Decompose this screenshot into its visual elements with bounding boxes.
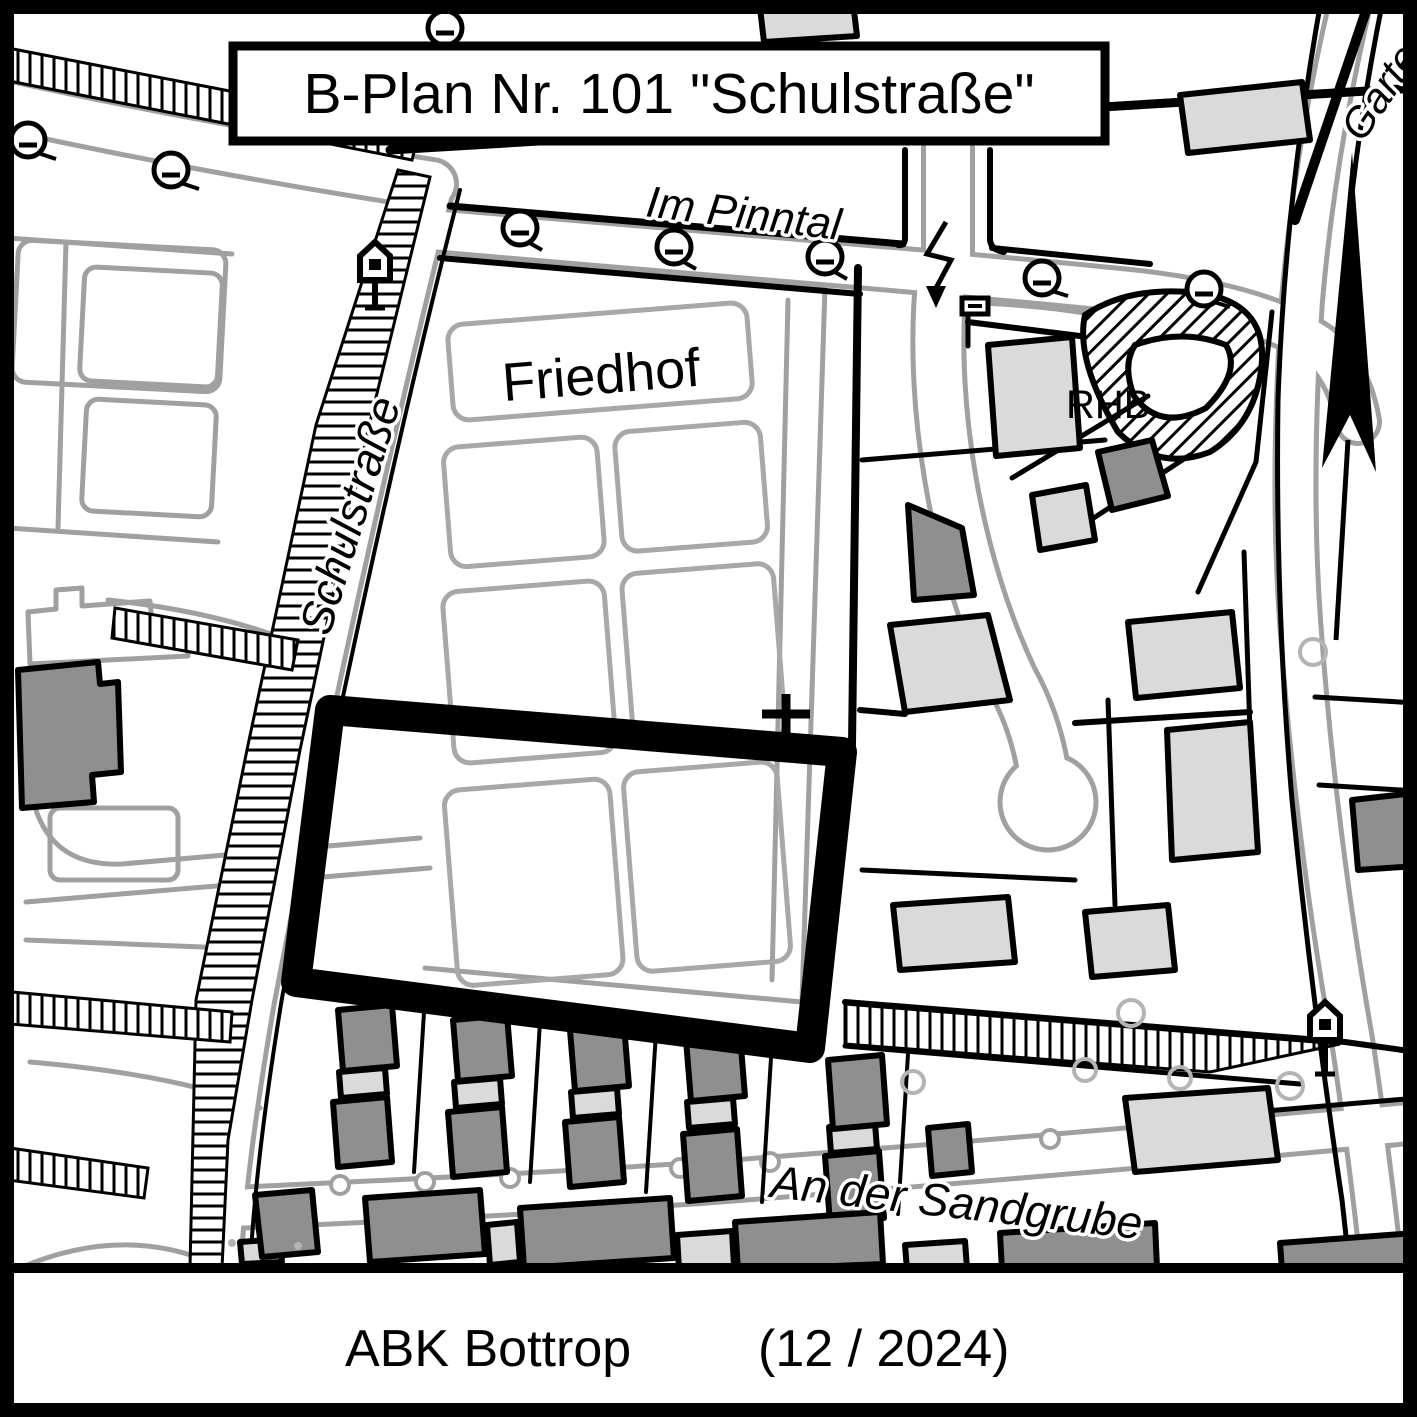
house — [735, 1212, 883, 1270]
frame-left — [0, 0, 14, 1417]
building — [1032, 485, 1095, 550]
dot — [294, 1242, 302, 1250]
building — [1085, 905, 1175, 977]
plan-title: B-Plan Nr. 101 "Schulstraße" — [303, 62, 1034, 126]
retention-basin-label: RHB — [1066, 383, 1150, 427]
building — [1167, 722, 1258, 860]
building — [890, 615, 1010, 712]
house — [683, 1129, 742, 1201]
house — [453, 1015, 512, 1081]
frame-bottom — [0, 1403, 1417, 1417]
house — [565, 1117, 624, 1187]
map-canvas: Friedhof — [0, 0, 1417, 1417]
house — [520, 1198, 674, 1268]
house — [365, 1190, 485, 1262]
house — [338, 1005, 397, 1071]
culdesac-bulb — [1003, 757, 1093, 847]
footer-band — [0, 1273, 1417, 1404]
house — [255, 1190, 318, 1257]
building — [1128, 612, 1240, 698]
map-footer-divider — [0, 1263, 1417, 1273]
house — [333, 1097, 392, 1167]
house — [448, 1107, 507, 1177]
frame-right — [1403, 0, 1417, 1417]
title-box: B-Plan Nr. 101 "Schulstraße" — [233, 46, 1105, 141]
parcel-boundary — [860, 710, 905, 714]
cabinet-icon — [962, 298, 988, 314]
building — [1098, 440, 1168, 510]
building — [893, 897, 1015, 970]
garage — [487, 1222, 520, 1265]
footer-edition: (12 / 2024) — [758, 1320, 1010, 1378]
frame-top — [0, 0, 1417, 14]
dot — [228, 1239, 236, 1247]
footer-source: ABK Bottrop — [345, 1320, 631, 1378]
building — [1125, 1088, 1278, 1172]
bplan-map-sheet: Friedhof — [0, 0, 1417, 1417]
house — [928, 1124, 972, 1176]
street-lamp-icon — [428, 11, 462, 45]
building — [1180, 82, 1310, 153]
house — [828, 1055, 887, 1129]
